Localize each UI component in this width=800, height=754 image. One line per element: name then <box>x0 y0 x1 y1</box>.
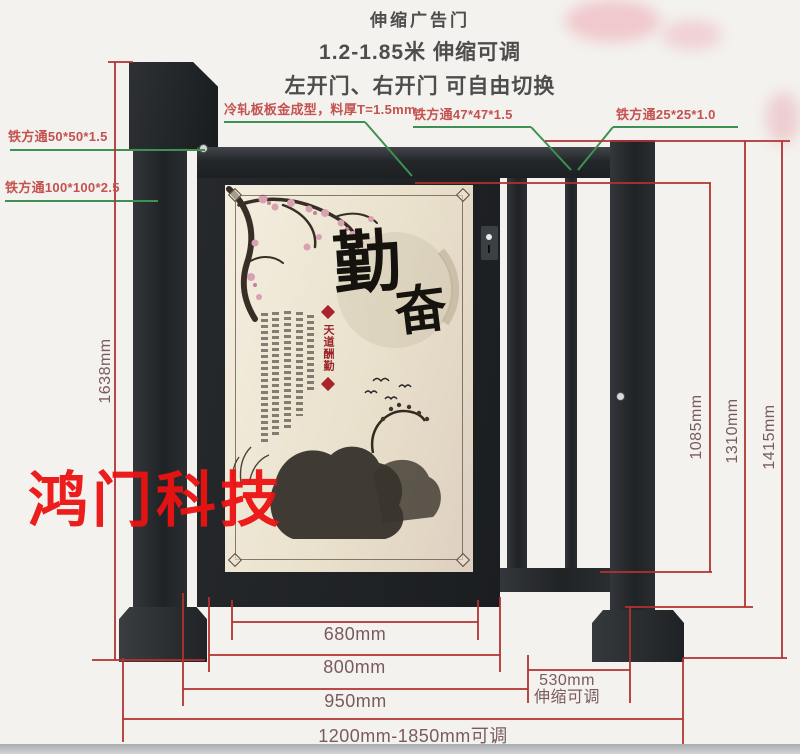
dim-inner-height: 1085mm <box>688 377 706 477</box>
banner-text: 天道酬勤 <box>322 324 333 372</box>
header-size-range: 1.2-1.85米 伸缩可调 <box>170 36 670 66</box>
hinge-pivot <box>199 144 208 153</box>
gate-top-beam <box>197 147 612 178</box>
pink-smudge <box>766 92 800 144</box>
dim-pillar-height: 1415mm <box>761 387 779 487</box>
lock-keyhole <box>486 234 492 240</box>
telescopic-bottom-rail <box>500 568 612 592</box>
banner-ornament-bottom <box>320 377 334 391</box>
banner-ornament-top <box>320 305 334 319</box>
dim-tele-width-value: 530mm <box>512 672 622 689</box>
callout-square-tube-47: 铁方通47*47*1.5 <box>413 104 513 123</box>
dim-total-height: 1638mm <box>97 321 115 421</box>
poem-column <box>307 315 314 391</box>
ground-strip <box>0 744 800 754</box>
poem-column <box>261 313 268 445</box>
poster-banner: 天道酬勤 <box>319 307 336 389</box>
callout-square-tube-100: 铁方通100*100*2.5 <box>5 177 120 196</box>
poem-column <box>284 311 291 429</box>
pink-smudge <box>662 20 722 50</box>
poem-column <box>272 312 279 438</box>
poem-column <box>296 312 303 416</box>
product-diagram: 伸缩广告门 1.2-1.85米 伸缩可调 左开门、右开门 可自由切换 <box>0 0 800 754</box>
dim-poster-width: 680mm <box>232 624 478 645</box>
pillar-screw <box>616 392 625 401</box>
left-pillar-cap <box>129 62 218 150</box>
telescopic-bar-25 <box>565 178 577 570</box>
dim-mid-height: 1310mm <box>724 381 742 481</box>
header-open-direction: 左开门、右开门 可自由切换 <box>170 70 670 100</box>
right-pillar-base <box>592 610 684 662</box>
page-title: 伸缩广告门 <box>170 6 670 31</box>
lock-slot <box>488 245 490 253</box>
callout-cold-rolled-panel: 冷轧板板金成型，料厚T=1.5mm <box>224 99 416 118</box>
calligraphy-fen: 奋 <box>392 282 450 340</box>
right-pillar <box>610 140 655 616</box>
left-pillar-base <box>119 607 207 662</box>
dim-tele-width: 530mm 伸缩可调 <box>512 672 622 706</box>
dim-door-width: 800mm <box>209 657 500 678</box>
telescopic-bar-47 <box>507 178 527 570</box>
watermark-text: 鸿门科技 <box>28 452 284 539</box>
callout-square-tube-25: 铁方通25*25*1.0 <box>616 104 716 123</box>
door-lock <box>481 226 498 260</box>
left-pillar <box>133 148 187 613</box>
callout-square-tube-50: 铁方通50*50*1.5 <box>8 126 108 145</box>
dim-frame-width: 950mm <box>183 691 528 712</box>
dim-tele-width-note: 伸缩可调 <box>512 689 622 706</box>
